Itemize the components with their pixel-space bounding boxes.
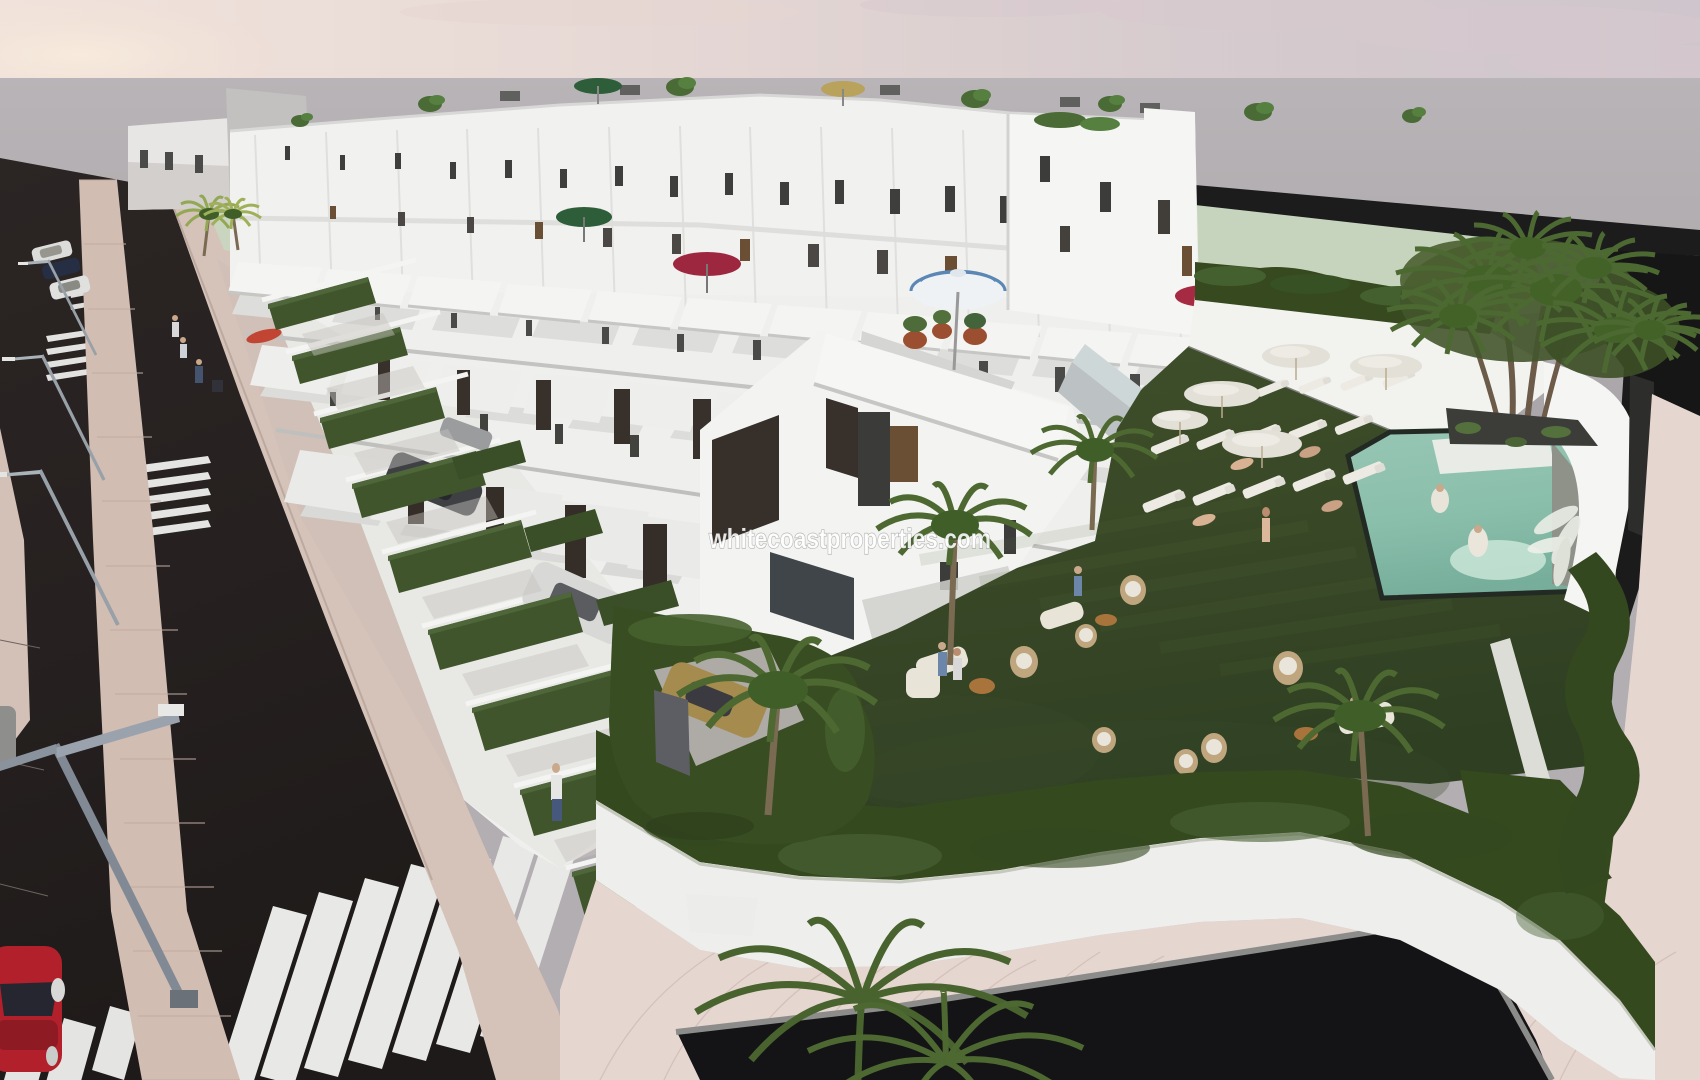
- svg-text:whitecoastproperties.com: whitecoastproperties.com: [708, 523, 991, 554]
